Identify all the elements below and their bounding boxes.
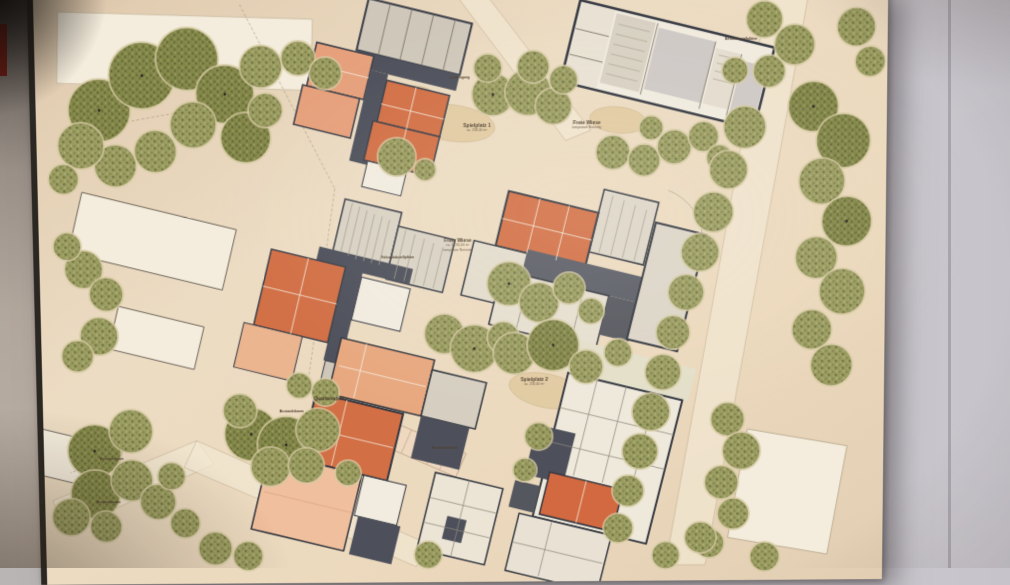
tree-canopy: [249, 94, 282, 127]
tree-canopy: [475, 55, 501, 82]
tree: [548, 64, 578, 95]
tree: [627, 143, 661, 178]
tree-canopy: [685, 523, 715, 553]
tree-canopy: [658, 131, 690, 164]
tree-canopy: [751, 543, 779, 571]
tree-canopy: [570, 351, 602, 383]
tree-canopy: [653, 542, 679, 568]
tree-canopy: [297, 409, 339, 451]
tree-canopy: [415, 160, 435, 180]
tree-canopy: [775, 25, 814, 64]
tree-trunk-dot: [492, 93, 495, 96]
tree-canopy: [90, 278, 123, 310]
tree: [644, 353, 682, 391]
tree-canopy: [711, 403, 743, 435]
tree-canopy: [725, 107, 765, 148]
plan-sublabel: ca. 256,00 m²: [524, 382, 546, 386]
plan-label: Fahrradabstellplätze: [381, 255, 414, 259]
tree-canopy: [633, 394, 669, 430]
tree: [602, 512, 634, 544]
tree: [577, 297, 605, 325]
tree-canopy: [640, 117, 662, 139]
tree-canopy: [289, 449, 323, 483]
tree-canopy: [800, 159, 845, 204]
site-plan-drawing: Spielplatz 1ca. 208,00 m²Freie Wiesetemp…: [33, 0, 888, 585]
tree: [413, 158, 437, 182]
tree-canopy: [754, 56, 784, 87]
tree-canopy: [579, 299, 603, 323]
tree: [472, 53, 502, 84]
tree-canopy: [518, 51, 548, 82]
plan-sublabel: temporäre Nutzung: [572, 126, 601, 130]
tree: [595, 134, 631, 171]
tree-canopy: [336, 461, 360, 485]
tree-canopy: [554, 273, 584, 303]
tree-canopy: [378, 139, 415, 176]
plan-label: Bestandsbaum: [97, 500, 121, 504]
tree: [524, 421, 554, 451]
tree-canopy: [234, 542, 262, 570]
tree-canopy: [158, 463, 184, 489]
tree-canopy: [629, 145, 659, 175]
tree-canopy: [514, 459, 536, 481]
plan-label: Quartiersplatz: [314, 396, 348, 402]
tree-canopy: [646, 355, 680, 389]
tree-canopy: [54, 234, 81, 260]
tree: [638, 115, 664, 141]
plan-label: Bestandsbaum: [100, 457, 124, 461]
tree-canopy: [287, 374, 311, 398]
tree-canopy: [669, 275, 703, 309]
plan-sublabel: ca. 1.050,00 m²: [446, 243, 470, 247]
plan-sublabel: ca. 208,00 m²: [467, 128, 489, 132]
tree-canopy: [723, 58, 747, 83]
tree: [651, 540, 681, 569]
tree-canopy: [747, 2, 782, 37]
tree-canopy: [657, 316, 689, 348]
plan-label: Bestandsbaum: [280, 409, 304, 413]
tree-canopy: [224, 395, 256, 427]
plan-sublabel: temporäre Nutzung: [443, 248, 472, 252]
tree: [516, 49, 550, 84]
tree-canopy: [49, 165, 78, 193]
tree-canopy: [605, 340, 631, 366]
tree: [413, 540, 443, 570]
tree: [603, 338, 633, 368]
plan-label: Bestandsbäume: [432, 446, 458, 450]
tree-canopy: [718, 499, 748, 529]
tree-canopy: [91, 512, 121, 542]
tree: [621, 433, 659, 471]
tree-canopy: [682, 234, 718, 270]
tree-canopy: [171, 509, 199, 537]
tree-canopy: [793, 310, 831, 348]
tree-canopy: [723, 433, 759, 469]
tree-canopy: [252, 448, 290, 486]
wall-corner-seam: [948, 0, 951, 568]
tree-canopy: [710, 151, 746, 188]
tree: [512, 457, 538, 483]
tree-canopy: [623, 435, 657, 469]
tree: [611, 474, 645, 508]
plan-label: Besucherstellplätze: [725, 37, 757, 41]
tree: [655, 314, 691, 350]
tree-canopy: [838, 8, 875, 45]
tree-canopy: [199, 533, 231, 564]
tree-canopy: [604, 514, 632, 542]
tree: [631, 392, 671, 432]
tree-canopy: [811, 345, 851, 385]
tree: [568, 349, 604, 385]
tree: [667, 273, 705, 311]
tree-trunk-dot: [473, 347, 476, 350]
tree-canopy: [310, 58, 341, 89]
site-plan-board: Spielplatz 1ca. 208,00 m²Freie Wiesetemp…: [27, 0, 889, 585]
tree: [552, 271, 586, 305]
tree-canopy: [170, 103, 215, 148]
plan-label: Laubengang: [449, 75, 469, 79]
tree-trunk-dot: [552, 344, 555, 347]
tree-canopy: [820, 269, 864, 313]
photo-scene: Spielplatz 1ca. 208,00 m²Freie Wiesetemp…: [0, 0, 1010, 568]
tree-trunk-dot: [508, 282, 511, 285]
tree-canopy: [415, 542, 441, 568]
red-edge-object: [0, 24, 7, 76]
tree-canopy: [613, 476, 643, 506]
tree-canopy: [62, 341, 93, 371]
tree-canopy: [694, 193, 732, 231]
tree-canopy: [240, 46, 281, 87]
tree-canopy: [597, 136, 629, 169]
tree-canopy: [856, 47, 885, 76]
tree-canopy: [705, 466, 737, 498]
tree-canopy: [526, 423, 552, 449]
tree-canopy: [550, 66, 576, 93]
